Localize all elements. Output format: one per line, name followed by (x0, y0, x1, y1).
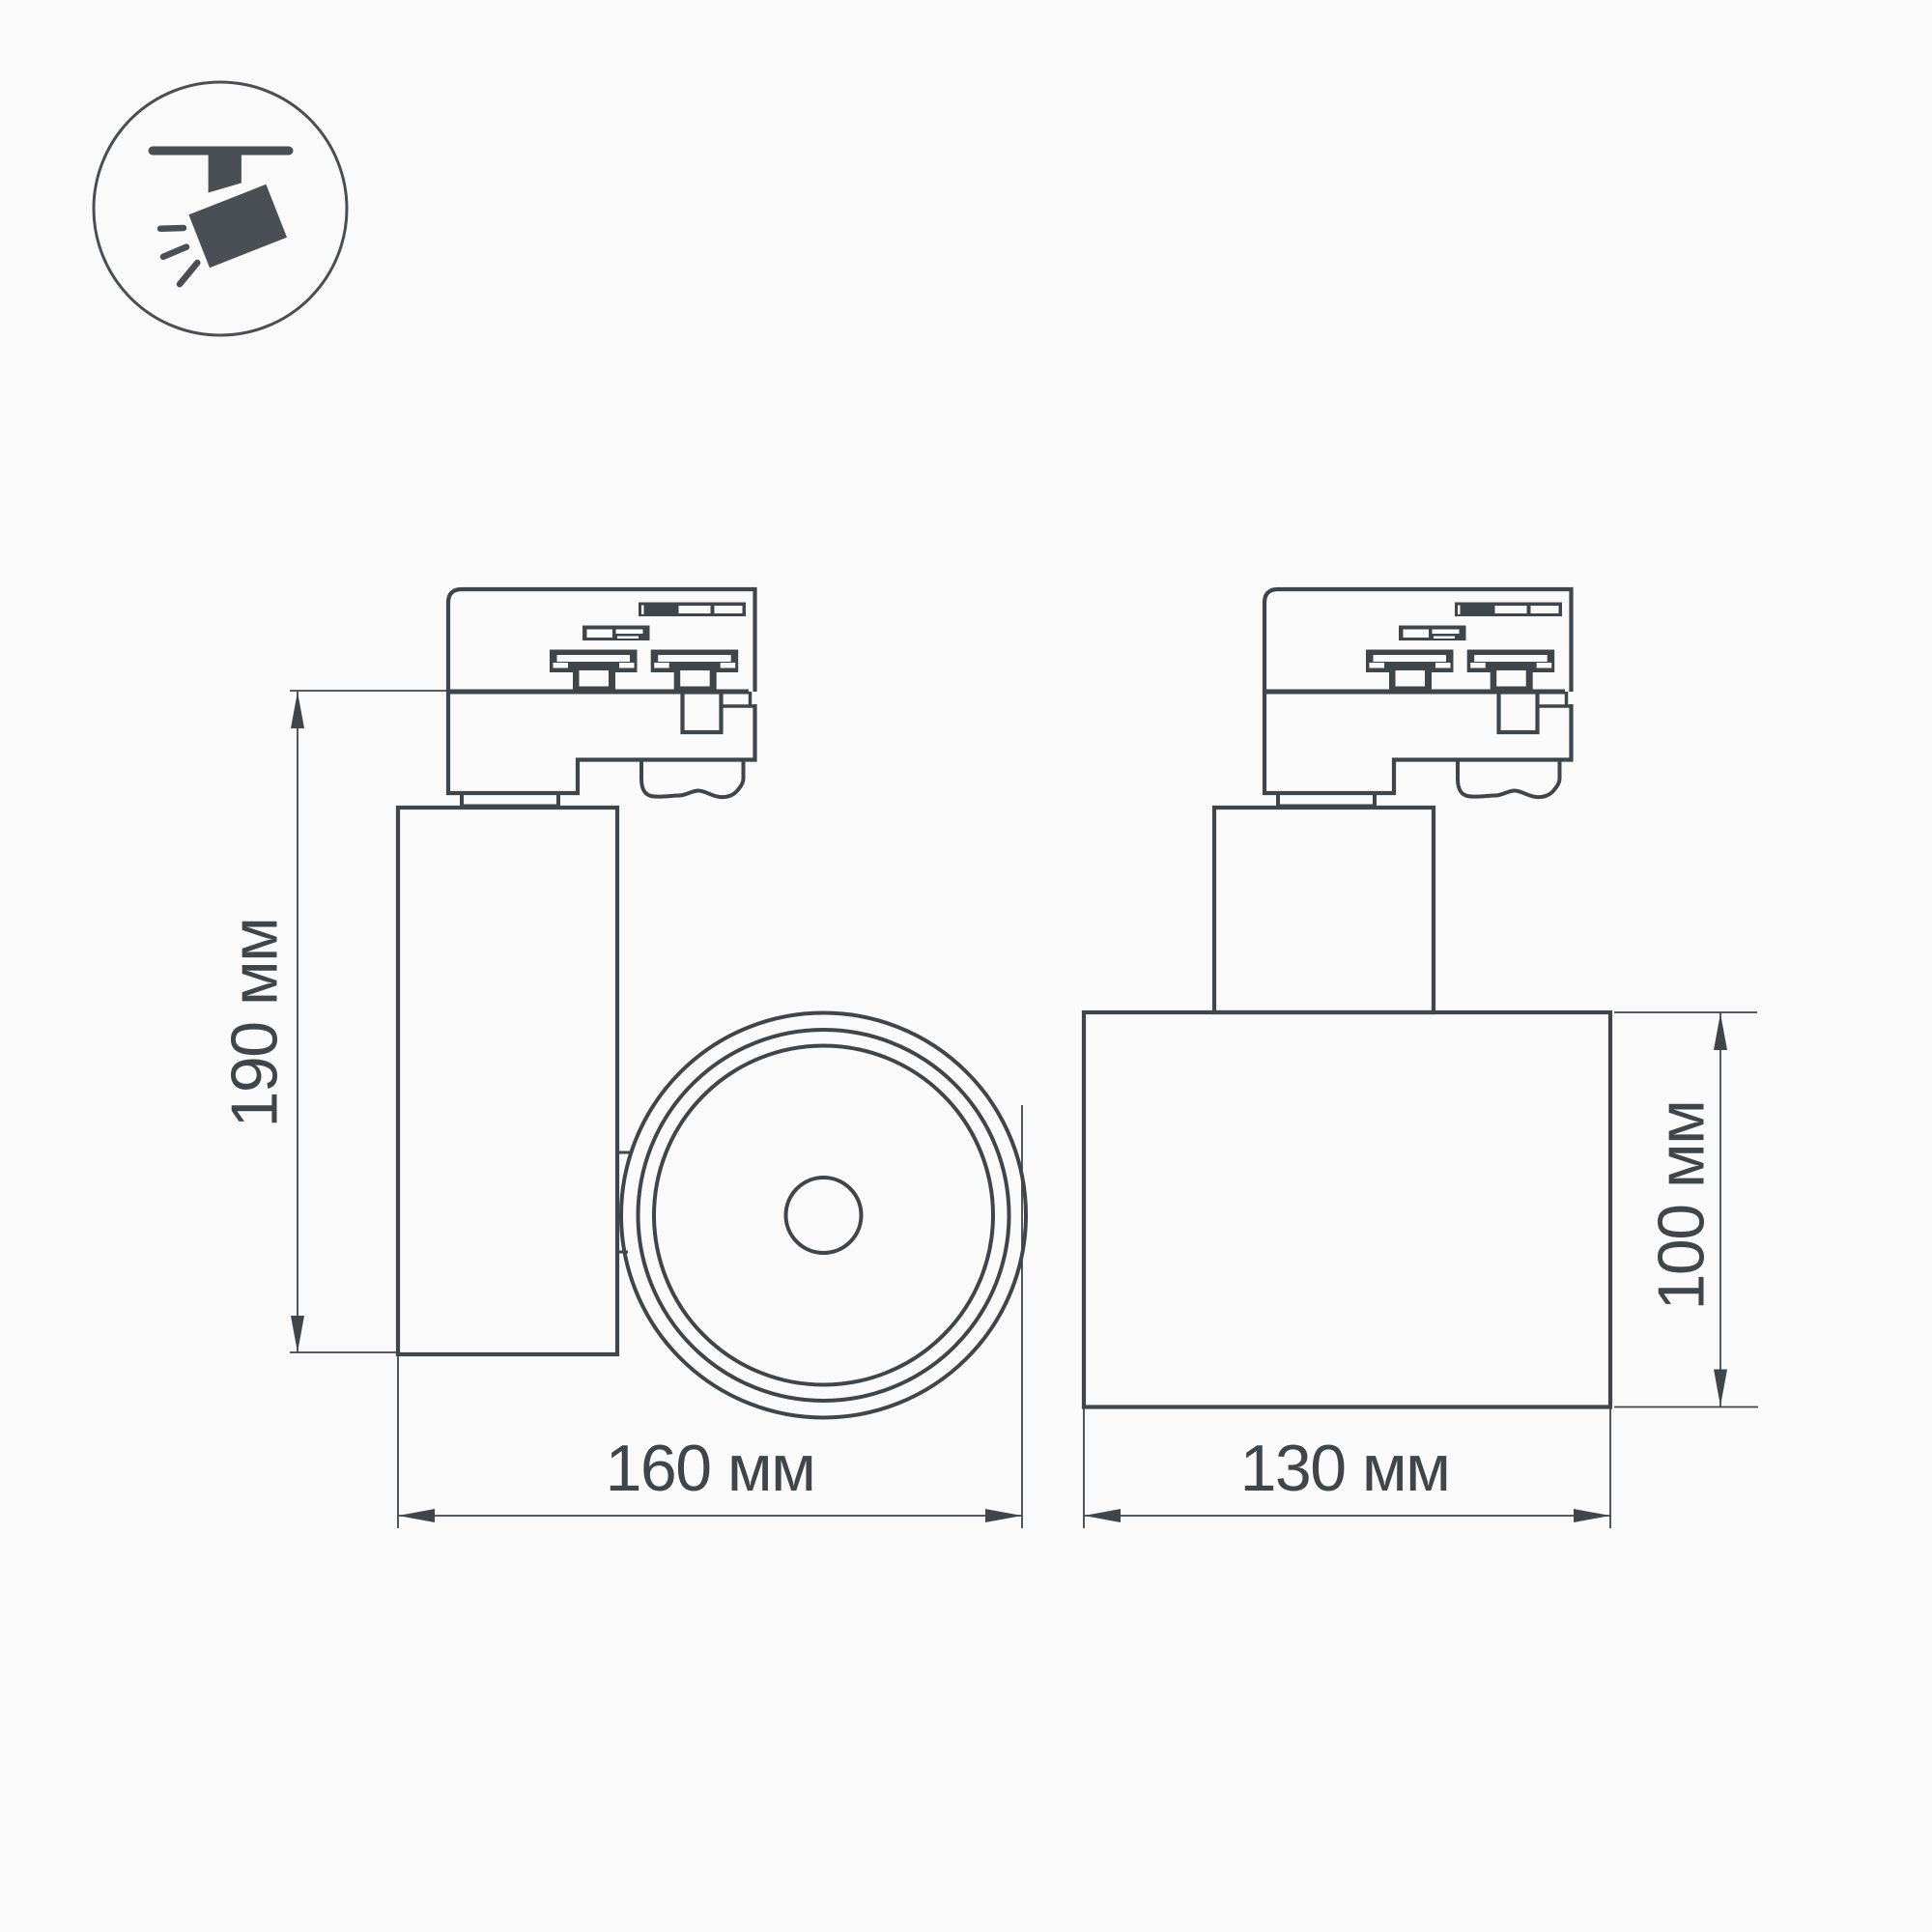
svg-text:190 мм: 190 мм (218, 919, 292, 1128)
svg-text:100 мм: 100 мм (1645, 1101, 1719, 1311)
svg-text:160 мм: 160 мм (606, 1432, 815, 1505)
svg-text:130 мм: 130 мм (1240, 1432, 1450, 1505)
